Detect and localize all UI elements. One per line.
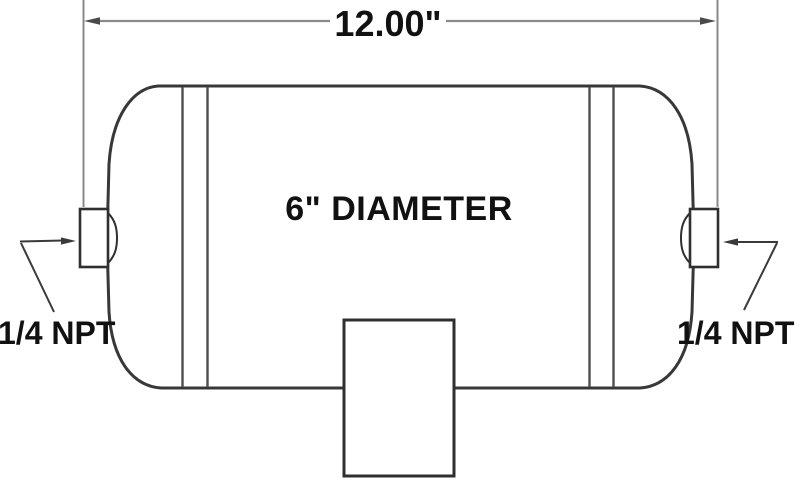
length-dimension-label: 12.00" (334, 3, 441, 44)
diameter-label: 6" DIAMETER (285, 190, 513, 228)
port-right-label: 1/4 NPT (677, 315, 795, 351)
dimension-arrowhead-right-icon (700, 17, 716, 25)
leader-arrowhead-left-icon (61, 237, 76, 244)
leader-horizontal-left (20, 241, 63, 242)
port-left-label: 1/4 NPT (0, 315, 116, 351)
leader-diagonal-left (21, 243, 54, 312)
air-tank-dimensional-diagram: 12.00" 1/4 NPT (0, 0, 800, 483)
mounting-bracket (344, 320, 454, 476)
port-fitting-right-body (690, 209, 718, 267)
leader-diagonal-right (744, 243, 777, 310)
leader-arrowhead-right-icon (723, 238, 738, 245)
drawing-canvas: 12.00" 1/4 NPT (0, 0, 800, 483)
port-fitting-left-body (80, 209, 108, 267)
dimension-arrowhead-left-icon (84, 17, 100, 25)
